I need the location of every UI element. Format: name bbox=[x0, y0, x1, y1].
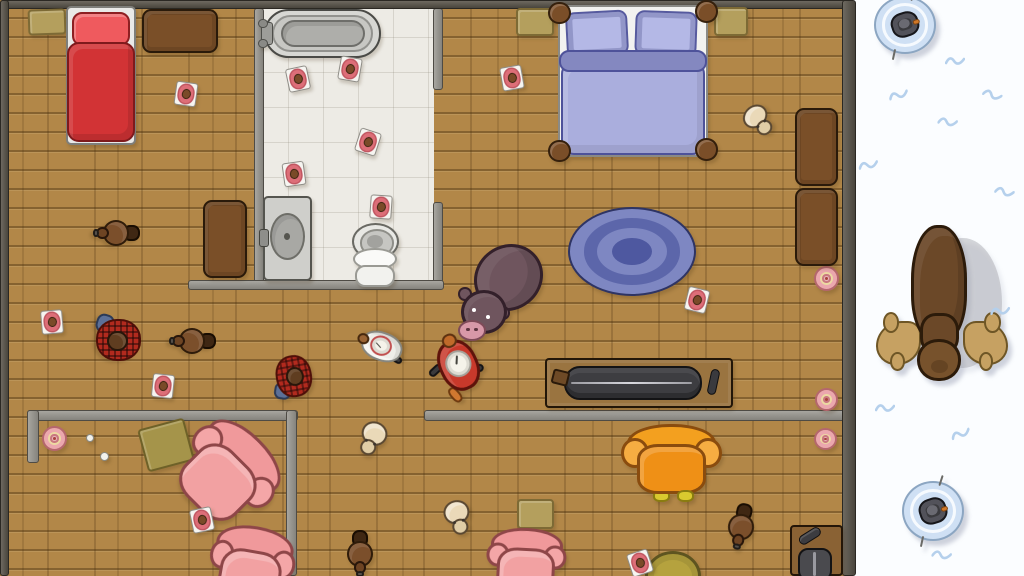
toilet-tl-base bbox=[355, 265, 395, 287]
moose-m-head bbox=[917, 339, 961, 381]
bench-right-1 bbox=[795, 108, 838, 186]
armchair-pink-3 bbox=[486, 526, 566, 576]
sink-s-basin bbox=[270, 213, 305, 260]
bed-double-purple-bd-post bbox=[548, 2, 570, 24]
trap-card-3[interactable] bbox=[337, 55, 363, 82]
mat-topleft bbox=[28, 8, 67, 35]
bench-right-2 bbox=[795, 188, 838, 266]
food-bowl-2 bbox=[814, 266, 839, 291]
snow-squiggle-1-icon bbox=[945, 53, 965, 67]
ball-small-2[interactable] bbox=[100, 452, 109, 461]
tv-table-coaster bbox=[550, 368, 570, 386]
trap-card-9[interactable] bbox=[499, 64, 525, 91]
desk-d-laptop bbox=[798, 548, 832, 576]
wall-bathroom-bottom bbox=[188, 280, 444, 290]
trap-card-5[interactable] bbox=[281, 161, 306, 188]
snow-squiggle-10 bbox=[989, 301, 1010, 317]
snow-squiggle-5 bbox=[857, 154, 879, 171]
lumberjack-1[interactable] bbox=[90, 314, 144, 368]
snow-squiggle-7-icon bbox=[875, 400, 895, 414]
game-viewport[interactable] bbox=[0, 0, 1024, 576]
trap-card-2[interactable] bbox=[285, 65, 312, 93]
lumberjack-2[interactable] bbox=[268, 348, 322, 405]
food-bowl-1 bbox=[42, 426, 67, 451]
mat-bedroom2 bbox=[714, 7, 748, 36]
food-bowl-2-t-core bbox=[822, 274, 830, 282]
bed-double-purple-bd-fold bbox=[559, 50, 706, 72]
food-bowl-1-t-core bbox=[50, 434, 58, 442]
platypus-3-p-bill bbox=[356, 571, 365, 576]
food-bowl-3 bbox=[815, 388, 838, 411]
bathtub-t-tap bbox=[261, 22, 272, 45]
trap-card-6[interactable] bbox=[369, 194, 393, 219]
snow-squiggle-1 bbox=[945, 52, 965, 66]
bed-single-red bbox=[66, 6, 136, 145]
ice-hole-2[interactable] bbox=[902, 481, 964, 541]
platypus-2-p-bill bbox=[93, 229, 99, 238]
rug-oval-blue bbox=[568, 207, 696, 296]
rug-oval-blue-r4 bbox=[612, 238, 652, 265]
food-bowl-4 bbox=[814, 428, 837, 450]
bathtub-t-basin bbox=[281, 20, 366, 47]
bed-double-purple bbox=[553, 5, 713, 160]
wall-living-top-right bbox=[424, 410, 845, 421]
moose[interactable] bbox=[882, 222, 1004, 384]
ice-hole-1-ih-crack bbox=[910, 0, 915, 1]
trap-card-11[interactable] bbox=[189, 506, 216, 534]
bed-double-purple-bd-post bbox=[695, 0, 717, 22]
wall-bathroom-right-bottom bbox=[433, 202, 443, 284]
bed-double-purple-bd-post bbox=[695, 138, 717, 160]
snow-squiggle-7 bbox=[875, 399, 895, 413]
bathtub bbox=[264, 9, 381, 58]
wall-bathroom-right-top bbox=[433, 8, 443, 90]
trap-card-1[interactable] bbox=[173, 81, 198, 108]
sink-s-tap bbox=[259, 229, 269, 247]
moose-m-antler bbox=[963, 321, 1008, 365]
desk-d-remote bbox=[797, 525, 822, 546]
desk bbox=[790, 525, 843, 576]
bed-single-red-blanket bbox=[67, 42, 134, 142]
wall-outer-right bbox=[842, 0, 856, 576]
platypus-3[interactable] bbox=[346, 531, 374, 576]
bed-double-purple-bd-blanket bbox=[561, 61, 705, 156]
trap-card-7[interactable] bbox=[40, 309, 64, 335]
tv-table bbox=[545, 358, 733, 408]
bed-double-purple-bd-post bbox=[548, 140, 570, 162]
toilet bbox=[350, 224, 400, 288]
snow-squiggle-4 bbox=[937, 111, 959, 128]
ball-small-1[interactable] bbox=[86, 434, 94, 442]
platypus-1[interactable] bbox=[169, 327, 215, 355]
trap-card-12-critter bbox=[635, 558, 644, 568]
lumberjack-1-lj-head bbox=[107, 331, 128, 352]
wall-outer-left bbox=[0, 0, 9, 576]
wall-living-top-left bbox=[27, 410, 298, 421]
sink bbox=[263, 196, 312, 281]
bench-left bbox=[203, 200, 247, 278]
trap-card-8[interactable] bbox=[151, 373, 175, 399]
tv-table-tv-line bbox=[571, 382, 692, 385]
armchair-orange-co-seat bbox=[637, 444, 706, 494]
armchair-orange bbox=[625, 424, 718, 500]
armchair-pink-3-sp-seat bbox=[495, 547, 555, 576]
platypus-2[interactable] bbox=[93, 219, 139, 247]
platypus-1-p-bill bbox=[169, 337, 175, 346]
snow-squiggle-10-icon bbox=[990, 302, 1011, 318]
wall-living-stub bbox=[27, 410, 39, 463]
food-bowl-4-t-core bbox=[822, 435, 830, 442]
moose-m-antler bbox=[876, 321, 921, 365]
food-bowl-3-t-core bbox=[823, 396, 831, 404]
tv-table-remote2 bbox=[706, 369, 720, 396]
mat-bottom bbox=[517, 499, 554, 529]
bench-top bbox=[142, 9, 218, 53]
bed-single-red-pillow bbox=[72, 12, 129, 47]
snow-squiggle-9 bbox=[931, 544, 953, 561]
